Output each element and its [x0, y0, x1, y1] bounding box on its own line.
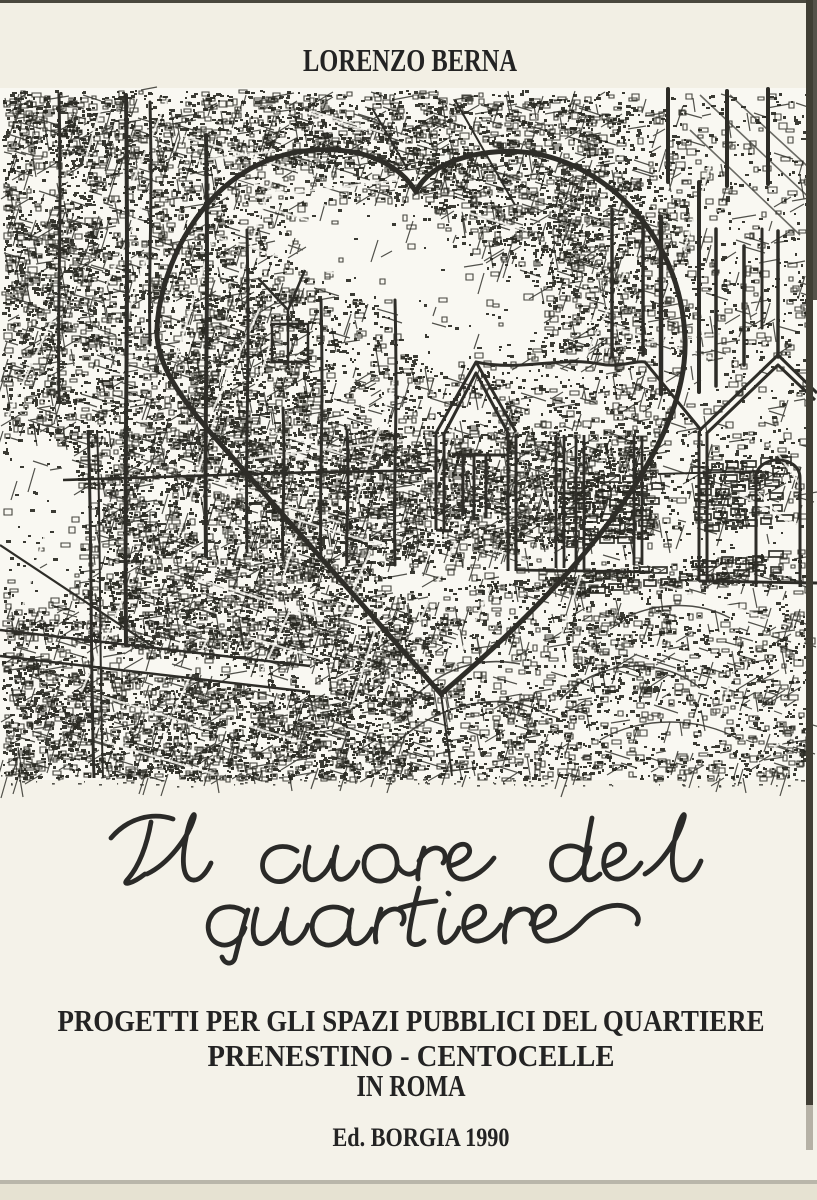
svg-text:LORENZO BERNA: LORENZO BERNA	[303, 42, 517, 78]
svg-text:PROGETTI PER GLI SPAZI PUBBLIC: PROGETTI PER GLI SPAZI PUBBLICI DEL QUAR…	[58, 1003, 765, 1038]
svg-text:IN ROMA: IN ROMA	[357, 1068, 466, 1103]
svg-text:Ed. BORGIA 1990: Ed. BORGIA 1990	[333, 1123, 510, 1152]
